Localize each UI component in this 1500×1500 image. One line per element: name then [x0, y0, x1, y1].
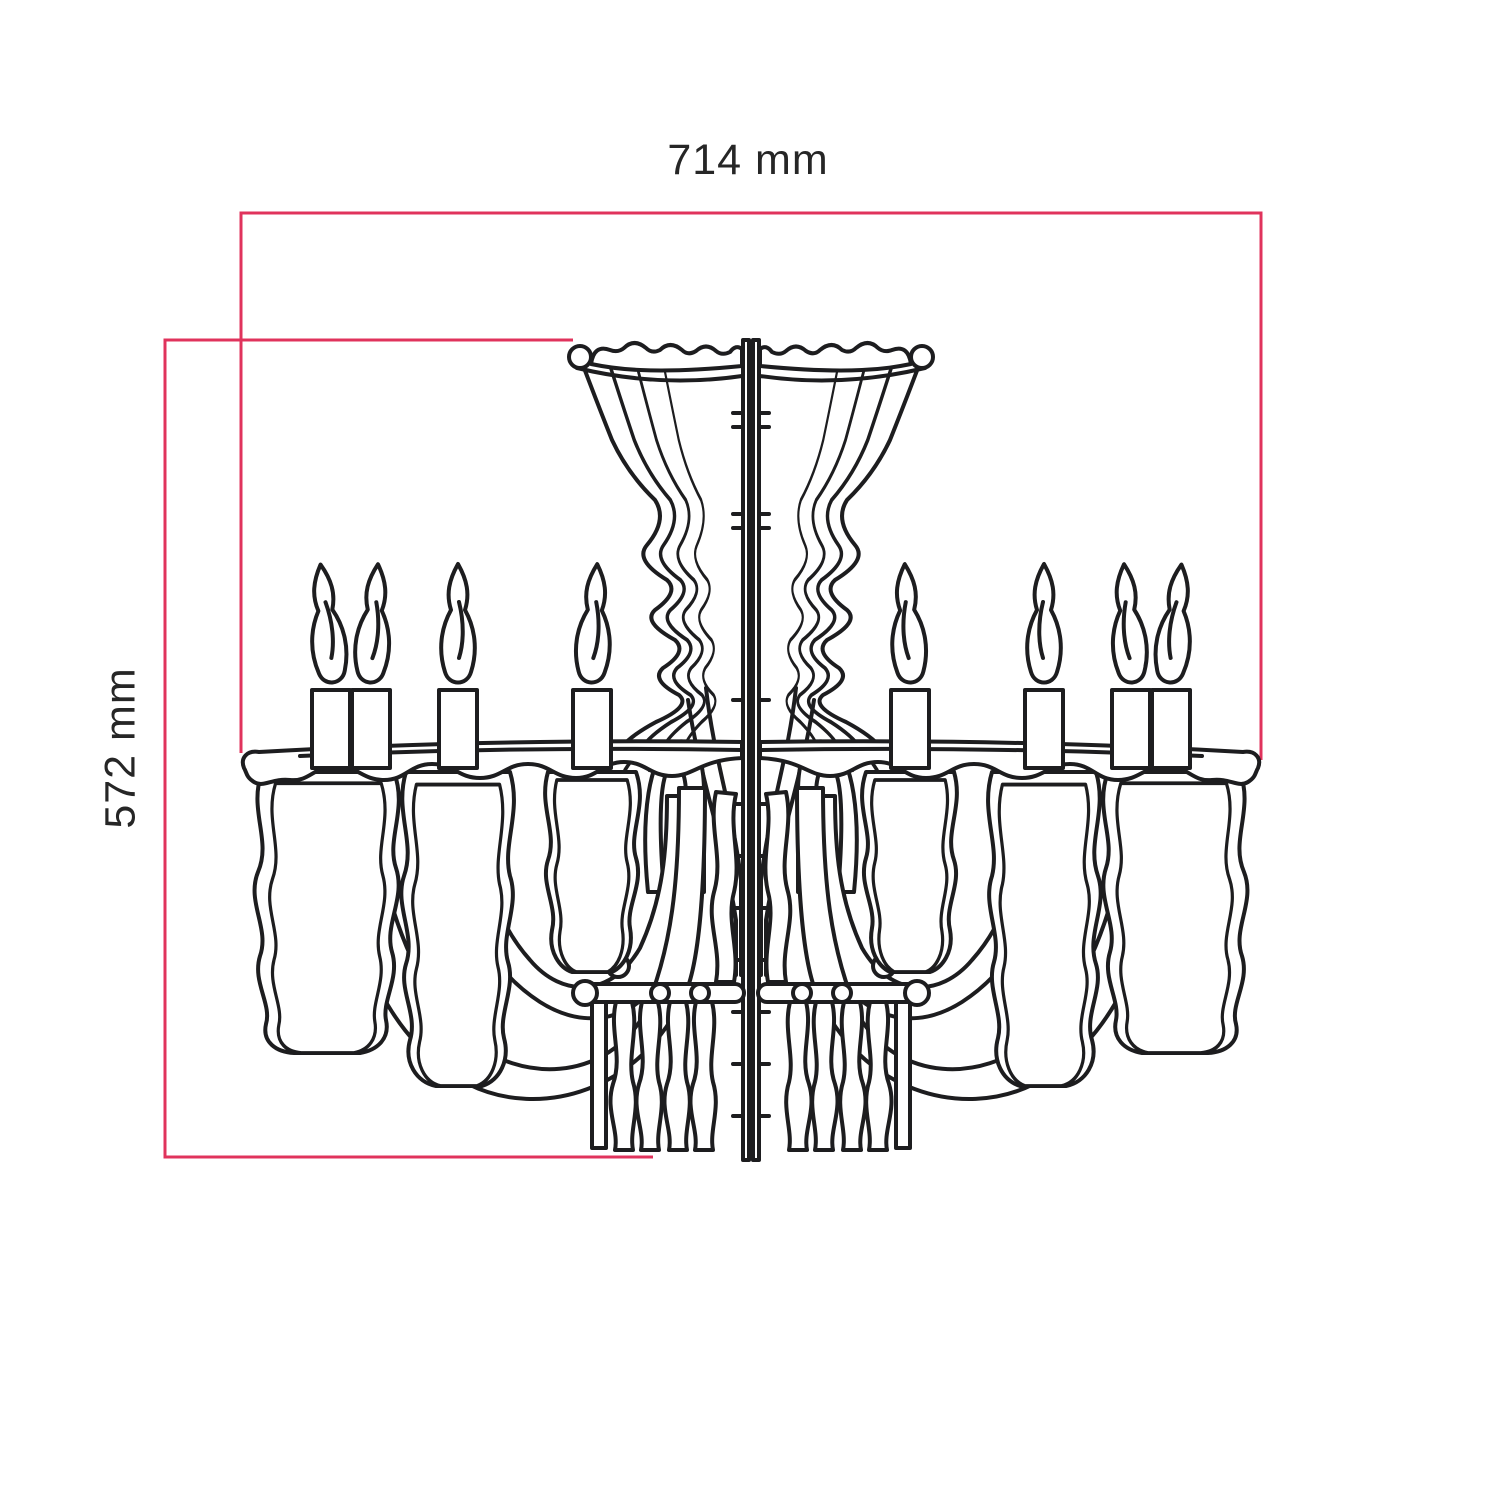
crown-end-knob — [569, 346, 591, 368]
candles — [304, 563, 614, 768]
central-stem — [743, 340, 759, 1160]
chandelier-left-half — [243, 343, 744, 1150]
candle-body — [352, 690, 390, 768]
chandelier-dimension-diagram — [0, 0, 1500, 1500]
candle-body — [573, 690, 611, 768]
height-dimension-label: 572 mm — [97, 667, 146, 828]
rod-knob — [691, 984, 709, 1002]
straight-strip — [592, 1002, 606, 1148]
wavy-strip — [690, 1002, 715, 1150]
width-dimension-label: 714 mm — [667, 136, 828, 185]
candle-flame — [353, 563, 395, 684]
wavy-strip — [610, 1002, 635, 1150]
chandelier-right-half — [758, 343, 1259, 1150]
chandelier-line-drawing — [243, 340, 1259, 1160]
rod-knob — [651, 984, 669, 1002]
bottom-rod — [573, 981, 744, 1005]
candle-flame — [441, 564, 475, 683]
mid-wavy-strip — [712, 792, 737, 982]
wavy-strip — [636, 1002, 661, 1150]
rod-end-knob — [573, 981, 597, 1005]
crown-scallop-band — [591, 343, 742, 371]
candle-body — [439, 690, 477, 768]
candle-flame — [574, 563, 614, 683]
candle-flame — [304, 563, 350, 684]
candle-body — [312, 690, 350, 768]
wavy-strip — [664, 1002, 689, 1150]
diagram-canvas: 714 mm 572 mm — [0, 0, 1500, 1500]
